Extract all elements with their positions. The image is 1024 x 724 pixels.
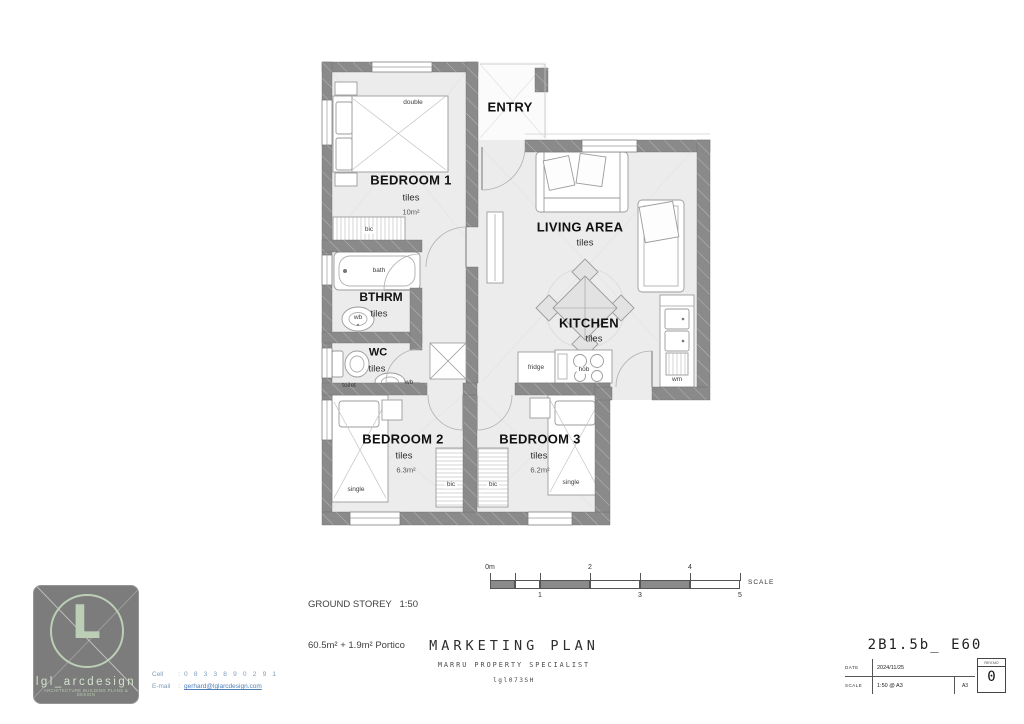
scale-row: SCALE 1:50 @ A3 A3 — [845, 676, 975, 694]
date-label: DATE — [845, 659, 872, 676]
entry-pillar — [535, 68, 548, 92]
revision-box: REV.NO 0 — [977, 658, 1006, 693]
hatch-square — [430, 343, 466, 379]
scale-tick-1: 1 — [538, 592, 542, 599]
scale-label: SCALE — [845, 677, 872, 694]
bedroom3-label: BEDROOM 3 — [499, 433, 580, 446]
bedroom1-floor: tiles — [403, 193, 420, 203]
armchair — [638, 200, 684, 292]
revision-label: REV.NO — [978, 659, 1005, 667]
kitchen-label: KITCHEN — [559, 317, 619, 330]
wb-bthrm-label: wb — [354, 315, 362, 322]
sheet-code: lgl073SH — [429, 677, 599, 684]
email-separator: : — [174, 681, 184, 693]
scale-tick-4: 4 — [688, 564, 692, 571]
toilet — [332, 351, 369, 377]
paper-size: A3 — [954, 677, 975, 694]
sofa — [536, 152, 628, 212]
living-label: LIVING AREA — [537, 221, 624, 234]
hob-label: hob — [577, 367, 592, 374]
floor-plan: ENTRY BEDROOM 1 tiles 10m² LIVING AREA t… — [312, 52, 720, 534]
wc-floor: tiles — [369, 364, 386, 374]
scale-caption: SCALE — [748, 579, 774, 586]
bedroom2-area: 6.3m² — [396, 466, 415, 474]
email-link[interactable]: gerhard@lglarcdesign.com — [184, 681, 262, 693]
scale-bar: 0m 2 4 1 3 5 SCALE — [488, 564, 778, 606]
wc-label: WC — [369, 348, 387, 359]
bedroom2-floor: tiles — [396, 451, 413, 461]
logo-tagline: ARCHITECTURE BUILDING PLANS & DESIGN — [34, 689, 138, 697]
scale-tick-3: 3 — [638, 592, 642, 599]
tick-mark — [740, 573, 741, 581]
wm-label: wm — [672, 377, 682, 384]
contact-info: Cell : 0 8 3 3 8 9 0 2 9 1 E-mail : gerh… — [152, 669, 278, 694]
logo-monogram: L — [34, 599, 138, 645]
scale-tick-5: 5 — [738, 592, 742, 599]
double-bed-label: double — [403, 100, 423, 107]
kitchen-floor: tiles — [586, 334, 603, 344]
date-row: DATE 2024/11/25 — [845, 659, 975, 676]
bath-label: bath — [373, 268, 386, 275]
bedroom2-label: BEDROOM 2 — [362, 433, 443, 446]
bedroom1-label: BEDROOM 1 — [370, 174, 451, 187]
sheet-subtitle: MARRU PROPERTY SPECIALIST — [429, 661, 599, 669]
company-logo: L lgl_arcdesign ARCHITECTURE BUILDING PL… — [33, 585, 139, 704]
cell-label: Cell — [152, 669, 174, 681]
email-label: E-mail — [152, 681, 174, 693]
plan-code: 2B1.5b_ E60 — [868, 637, 983, 653]
single3-label: single — [563, 480, 580, 487]
bathroom-label: BTHRM — [359, 291, 402, 303]
entry-label: ENTRY — [487, 101, 532, 114]
bedroom3-floor: tiles — [531, 451, 548, 461]
single2-label: single — [348, 487, 365, 494]
cell-separator: : — [174, 669, 184, 681]
sheet-title: MARKETING PLAN — [429, 638, 599, 654]
scale-segment — [540, 580, 590, 589]
bedroom3-area: 6.2m² — [530, 466, 549, 474]
marketing-plan-sheet: ENTRY BEDROOM 1 tiles 10m² LIVING AREA t… — [0, 0, 1024, 724]
scale-segment — [640, 580, 690, 589]
date-value: 2024/11/25 — [872, 659, 975, 676]
bathroom-floor: tiles — [371, 309, 388, 319]
bic-closet-3 — [478, 448, 508, 507]
scale-segment — [515, 580, 540, 589]
bic3-label: bic — [487, 482, 499, 489]
living-floor: tiles — [577, 238, 594, 248]
bic2-label: bic — [445, 482, 457, 489]
bic1-label: bic — [363, 227, 375, 234]
tv-unit — [487, 212, 503, 283]
info-table: DATE 2024/11/25 SCALE 1:50 @ A3 A3 — [845, 659, 975, 694]
scale-tick-0: 0m — [485, 564, 495, 571]
storey-title: GROUND STOREY 1:50 — [308, 598, 418, 612]
scale-tick-2: 2 — [588, 564, 592, 571]
storey-area: 60.5m² + 1.9m² Portico — [308, 639, 418, 653]
logo-name: lgl_arcdesign — [34, 677, 138, 689]
fridge-label: fridge — [528, 365, 544, 372]
double-bed — [333, 82, 448, 186]
sink-counter — [660, 295, 694, 387]
scale-segment — [690, 580, 740, 589]
bic-closet-2 — [436, 448, 466, 507]
toilet-label: toilet — [342, 383, 356, 390]
storey-note: GROUND STOREY 1:50 60.5m² + 1.9m² Portic… — [308, 570, 418, 680]
bedroom1-area: 10m² — [402, 208, 419, 216]
scale-value: 1:50 @ A3 — [872, 677, 954, 694]
contact-cell-row: Cell : 0 8 3 3 8 9 0 2 9 1 — [152, 669, 278, 681]
revision-number: 0 — [978, 667, 1005, 685]
wb-wc-label: wb — [405, 380, 413, 387]
sheet-title-block: MARKETING PLAN MARRU PROPERTY SPECIALIST… — [429, 638, 599, 684]
contact-email-row: E-mail : gerhard@lglarcdesign.com — [152, 681, 278, 693]
scale-segment — [490, 580, 515, 589]
cell-number: 0 8 3 3 8 9 0 2 9 1 — [184, 669, 278, 681]
scale-segment — [590, 580, 640, 589]
